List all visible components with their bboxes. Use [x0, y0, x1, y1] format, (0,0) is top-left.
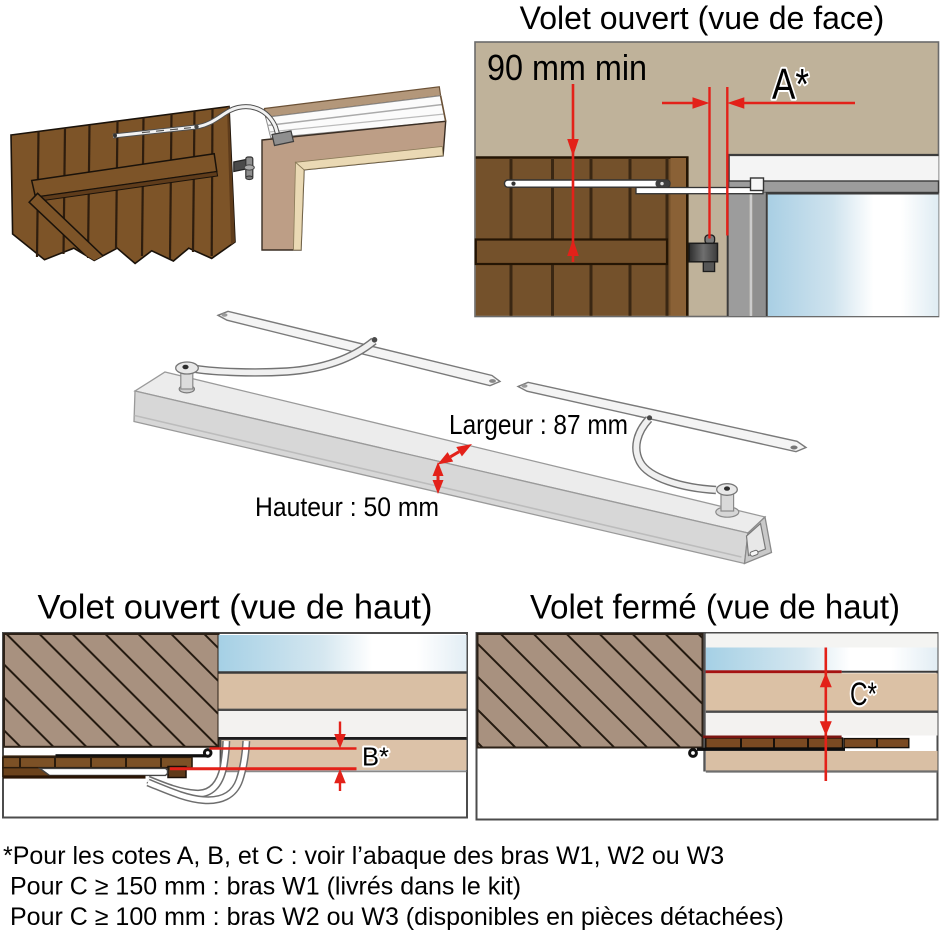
svg-text:Pour C ≥ 100 mm : bras W2 ou W: Pour C ≥ 100 mm : bras W2 ou W3 (disponi…: [10, 903, 784, 931]
svg-text:Volet ouvert (vue de face): Volet ouvert (vue de face): [520, 0, 885, 36]
svg-text:Largeur : 87 mm: Largeur : 87 mm: [449, 409, 628, 440]
svg-text:B*: B*: [362, 742, 389, 772]
svg-text:90 mm min: 90 mm min: [487, 47, 647, 88]
svg-text:Hauteur : 50 mm: Hauteur : 50 mm: [255, 492, 439, 522]
svg-text:A*: A*: [772, 60, 809, 109]
svg-text:Pour C ≥ 150 mm : bras W1 (liv: Pour C ≥ 150 mm : bras W1 (livrés dans l…: [10, 873, 521, 901]
svg-text:Volet fermé (vue de haut): Volet fermé (vue de haut): [530, 589, 900, 627]
svg-text:C*: C*: [850, 676, 877, 712]
svg-text:Volet ouvert (vue de haut): Volet ouvert (vue de haut): [38, 589, 433, 627]
svg-text:*Pour les cotes A, B, et C : v: *Pour les cotes A, B, et C : voir l’abaq…: [3, 842, 724, 870]
